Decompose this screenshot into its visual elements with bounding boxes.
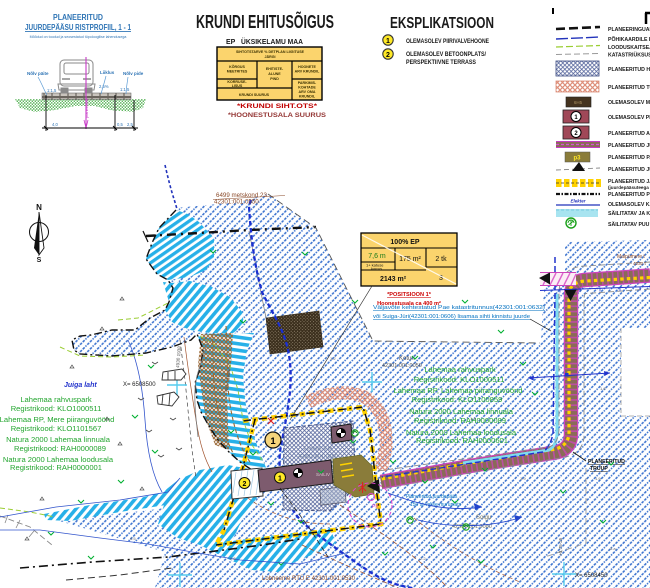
- svg-text:PLANEERITUD: PLANEERITUD: [588, 459, 625, 465]
- svg-text:KATASTRIÜKSUSE P: KATASTRIÜKSUSE P: [608, 52, 650, 59]
- svg-text:1.9: 1.9: [595, 476, 601, 481]
- svg-text:S: S: [37, 257, 42, 264]
- svg-text:p3: p3: [573, 156, 581, 162]
- svg-text:EKSPLIKATSIOON: EKSPLIKATSIOON: [390, 15, 494, 32]
- svg-text:Registrikood: KLO1000511: Registrikood: KLO1000511: [11, 404, 102, 413]
- svg-text:SÄILITATAV JA KOR: SÄILITATAV JA KOR: [608, 210, 650, 217]
- svg-text:OLEMASOLEV BETOONPLATS/: OLEMASOLEV BETOONPLATS/: [406, 51, 486, 58]
- svg-text:42301:001:0550: 42301:001:0550: [214, 199, 259, 206]
- svg-text:Nõlv päite: Nõlv päite: [27, 71, 49, 76]
- svg-text:PLANEERITUD PAR: PLANEERITUD PAR: [608, 155, 650, 161]
- svg-text:Nõlv pide: Nõlv pide: [123, 71, 144, 76]
- svg-text:2,5: 2,5: [127, 122, 133, 127]
- svg-text:Lahemaa rahvuspark: Lahemaa rahvuspark: [20, 395, 92, 404]
- svg-text:TRUUP: TRUUP: [590, 466, 608, 472]
- svg-text:Elekter: Elekter: [570, 199, 585, 204]
- svg-text:0.8: 0.8: [230, 556, 236, 561]
- svg-text:X= 6508450: X= 6508450: [575, 573, 608, 579]
- svg-text:175 m²: 175 m²: [399, 256, 421, 263]
- svg-text:*HOONESTUSALA SUURUS: *HOONESTUSALA SUURUS: [228, 112, 326, 119]
- svg-text:4,0: 4,0: [52, 122, 58, 127]
- svg-text:100% EP: 100% EP: [390, 239, 420, 246]
- svg-text:SÄILIV: SÄILIV: [316, 471, 330, 477]
- svg-text:*KRUNDI SIHT.OTS*: *KRUNDI SIHT.OTS*: [237, 103, 318, 110]
- svg-text:2143 m²: 2143 m²: [380, 276, 407, 283]
- svg-text:Soigu: Soigu: [476, 515, 491, 521]
- svg-text:PERSPEKTIIVNE TERRASS: PERSPEKTIIVNE TERRASS: [406, 59, 477, 66]
- svg-text:2: 2: [386, 52, 390, 59]
- svg-text:Lahemaa RP, Lahemaa piiranguvö: Lahemaa RP, Lahemaa piiranguvöönd: [393, 386, 522, 395]
- svg-text:PLANEERITUD AB: PLANEERITUD AB: [608, 131, 650, 137]
- svg-text:HOONETE: HOONETE: [298, 65, 316, 69]
- svg-text:JÄRGI: JÄRGI: [265, 55, 276, 59]
- svg-text:KÕRGUS: KÕRGUS: [229, 64, 245, 69]
- svg-text:Registrikood: KLO1000511: Registrikood: KLO1000511: [414, 375, 505, 384]
- svg-text:Registrikood: RAH0000089: Registrikood: RAH0000089: [14, 444, 106, 453]
- svg-text:0,5: 0,5: [117, 122, 123, 127]
- svg-text:OLEMASOLEV PIIRIVALVEHOONE: OLEMASOLEV PIIRIVALVEHOONE: [406, 38, 490, 45]
- svg-text:planeeritav: planeeritav: [84, 98, 89, 118]
- svg-text:EHITISTE-: EHITISTE-: [266, 67, 284, 71]
- svg-text:korrus: korrus: [371, 266, 382, 271]
- svg-text:Natura 2000 Lahemaa linnuala: Natura 2000 Lahemaa linnuala: [6, 435, 111, 444]
- svg-text:1.2: 1.2: [330, 356, 336, 361]
- svg-text:Malpümere t: Malpümere t: [617, 254, 645, 260]
- svg-text:1: 1: [270, 436, 276, 447]
- svg-text:KRUNDIL: KRUNDIL: [299, 95, 316, 99]
- svg-text:Planeeritud juurdepääs: Planeeritud juurdepääs: [406, 494, 458, 500]
- svg-text:7,6 m: 7,6 m: [368, 253, 386, 260]
- svg-text:ÜKSIKELAMU MAA: ÜKSIKELAMU MAA: [241, 37, 303, 46]
- svg-text:X= 6508500: X= 6508500: [123, 382, 156, 388]
- svg-text:KOHTADE: KOHTADE: [298, 86, 316, 90]
- svg-text:*POSITSIOON 1*: *POSITSIOON 1*: [387, 292, 432, 298]
- svg-text:Registrikood: KLO1101567: Registrikood: KLO1101567: [11, 424, 102, 433]
- svg-text:ARV KRUNDIL: ARV KRUNDIL: [295, 70, 320, 74]
- svg-text:LISUS: LISUS: [232, 84, 243, 88]
- svg-text:KRUNDI EHITUSÕIGUS: KRUNDI EHITUSÕIGUS: [196, 11, 334, 32]
- svg-text:KRUNDI SUURUS: KRUNDI SUURUS: [239, 93, 270, 97]
- svg-text:1: 1: [386, 38, 390, 45]
- svg-text:OLEMASOLEV MAA: OLEMASOLEV MAA: [608, 100, 650, 106]
- svg-text:PK: PK: [372, 504, 379, 510]
- svg-text:Registrikood: RAH0000601: Registrikood: RAH0000601: [416, 436, 508, 445]
- svg-text:Lahemaa rahvuspark: Lahemaa rahvuspark: [424, 365, 496, 374]
- svg-text:2.2: 2.2: [420, 556, 426, 561]
- svg-text:PLANEERITUD JUU: PLANEERITUD JUU: [608, 143, 650, 149]
- svg-text:1:1,5: 1:1,5: [47, 88, 57, 93]
- svg-text:Mõõdud on toodud ja seosestatu: Mõõdud on toodud ja seosestatud tüpoloog…: [30, 35, 127, 39]
- svg-text:OLEMASOLEV PER: OLEMASOLEV PER: [608, 115, 650, 121]
- svg-text:2: 2: [243, 481, 247, 488]
- svg-text:1: 1: [278, 476, 282, 483]
- svg-text:1.4: 1.4: [470, 416, 476, 421]
- svg-text:EP: EP: [226, 39, 236, 46]
- svg-text:1.8: 1.8: [600, 386, 606, 391]
- svg-text:+0,75-25: +0,75-25: [558, 537, 563, 556]
- svg-text:SIHTOTSTARVE % DETPLAN LIIGITU: SIHTOTSTARVE % DETPLAN LIIGITUSE: [236, 50, 305, 54]
- svg-text:MEETRITES: MEETRITES: [227, 70, 248, 74]
- svg-text:42301:001:0050: 42301:001:0050: [382, 363, 422, 369]
- svg-text:Lennuk 8 ta: Lennuk 8 ta: [304, 446, 334, 452]
- svg-text:PLANEERITUD HOO: PLANEERITUD HOO: [608, 67, 650, 73]
- svg-text:PLANEERITUD PIIRD: PLANEERITUD PIIRD: [608, 192, 650, 198]
- svg-text:JUURDEPÄÄSU RISTPROFIIL, 1 - 1: JUURDEPÄÄSU RISTPROFIIL, 1 - 1: [25, 22, 131, 32]
- svg-text:Registrikood: RAH0000001: Registrikood: RAH0000001: [10, 463, 102, 472]
- svg-text:PARKIMIS-: PARKIMIS-: [298, 81, 317, 85]
- svg-text:Natura 2000 Lahemaa linnuala: Natura 2000 Lahemaa linnuala: [409, 407, 514, 416]
- svg-text:PÕHIKAARDILE KAN: PÕHIKAARDILE KAN: [608, 36, 650, 43]
- svg-text:4230 t: 4230 t: [633, 261, 646, 266]
- svg-text:Lahemaa RP, Mere piiranguvöönd: Lahemaa RP, Mere piiranguvöönd: [0, 415, 114, 424]
- svg-text:Juiga laht: Juiga laht: [64, 382, 97, 389]
- svg-text:42301:001:0550: 42301:001:0550: [298, 454, 338, 460]
- svg-text:1:1,5: 1:1,5: [120, 87, 130, 92]
- svg-text:LOODUSKAITSEALA: LOODUSKAITSEALA: [608, 45, 650, 51]
- svg-text:6H5: 6H5: [574, 100, 583, 105]
- svg-text:Registrikood: KLO1100859: Registrikood: KLO1100859: [412, 395, 503, 404]
- svg-text:OLEMASOLEV KAA: OLEMASOLEV KAA: [608, 202, 650, 208]
- svg-text:5.a: 5.a: [610, 546, 616, 551]
- svg-text:SÄILITATAV PUU: SÄILITATAV PUU: [608, 221, 650, 228]
- svg-text:või Suiga-Jüri(42301:001:0606): või Suiga-Jüri(42301:001:0606) lisamaa s…: [373, 314, 530, 320]
- svg-text:2 tk: 2 tk: [435, 256, 447, 263]
- svg-text:0.5: 0.5: [130, 536, 136, 541]
- svg-text:(juurdepääsuteega: (juurdepääsuteega: [608, 185, 649, 190]
- svg-text:1.9: 1.9: [520, 476, 526, 481]
- svg-text:Väljavõte kehtestatud Pae kat: Väljavõte kehtestatud Pae katastritunnus…: [373, 305, 545, 311]
- svg-text:PLANEERINGUALA P: PLANEERINGUALA P: [608, 27, 650, 33]
- svg-text:Lobneeme RTÜ E 42301:001:0530: Lobneeme RTÜ E 42301:001:0530: [262, 575, 356, 582]
- svg-text:Liiklus: Liiklus: [100, 70, 115, 75]
- svg-text:PLANEERITUD: PLANEERITUD: [53, 12, 103, 22]
- svg-text:ALUNE: ALUNE: [268, 72, 281, 76]
- svg-text:ARV OMA: ARV OMA: [299, 90, 316, 94]
- svg-text:PIND: PIND: [270, 77, 279, 81]
- svg-text:Registrikood: RAH0000089: Registrikood: RAH0000089: [414, 416, 506, 425]
- svg-text:N: N: [36, 203, 42, 212]
- svg-text:PLANEERITUD JUU: PLANEERITUD JUU: [608, 167, 650, 173]
- svg-text:PLANEERITUD TUL: PLANEERITUD TUL: [608, 85, 650, 91]
